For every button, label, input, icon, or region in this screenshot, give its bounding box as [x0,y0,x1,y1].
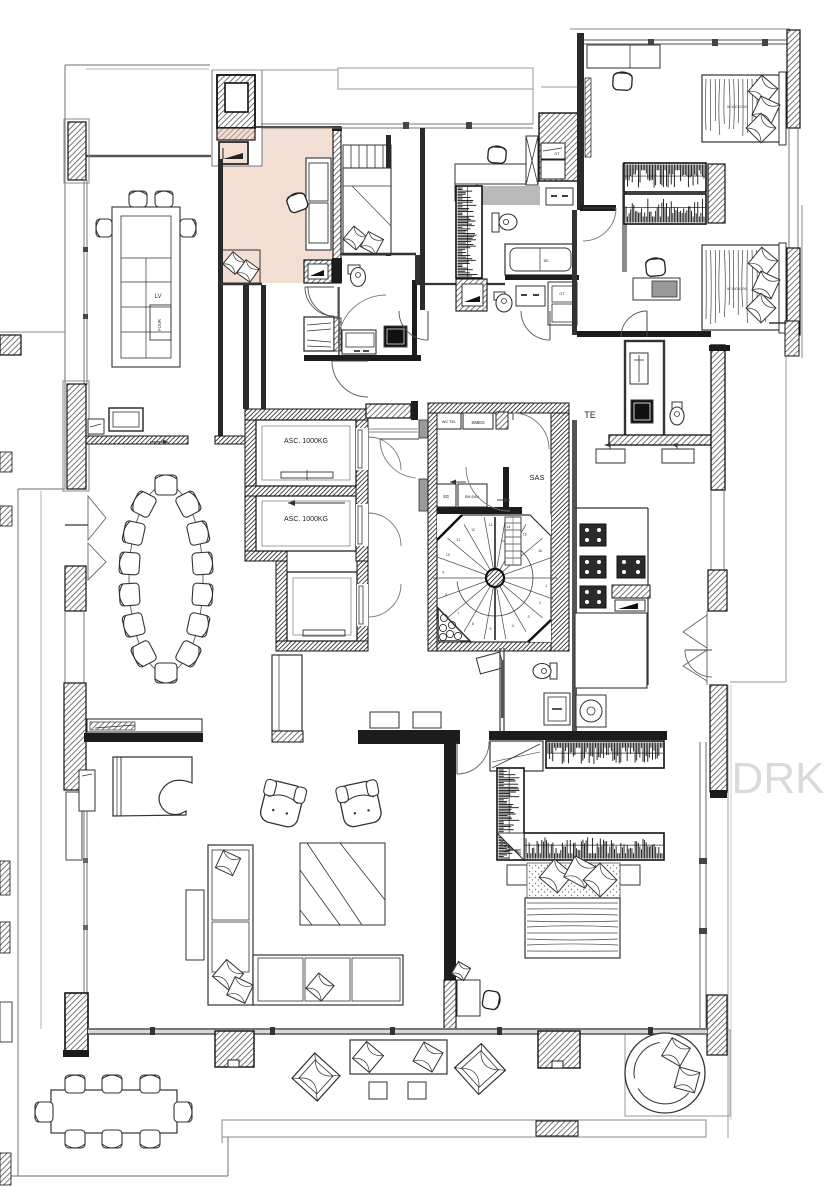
svg-text:BD: BD [544,259,549,263]
svg-text:TE: TE [584,410,596,420]
svg-text:2: 2 [539,601,541,605]
svg-text:ASC. 1000KG: ASC. 1000KG [284,516,328,523]
svg-text:LV: LV [155,294,162,300]
svg-text:DRK: DRK [732,754,825,803]
svg-text:12: 12 [471,528,475,532]
svg-text:10: 10 [446,553,450,557]
svg-text:4: 4 [512,624,514,628]
svg-text:GT: GT [559,291,565,296]
svg-text:GT: GT [554,151,560,156]
svg-text:SG: SG [443,494,449,499]
svg-text:7: 7 [457,612,459,616]
svg-text:1: 1 [545,584,547,588]
svg-text:11: 11 [456,538,460,542]
svg-text:5: 5 [489,627,491,631]
svg-text:6: 6 [472,622,474,626]
svg-text:FOUR: FOUR [157,319,162,331]
svg-text:lit 160X200: lit 160X200 [727,104,748,109]
svg-text:lit 160X200: lit 160X200 [727,286,748,291]
svg-text:8: 8 [445,593,447,597]
svg-text:SAS: SAS [529,473,544,482]
svg-text:SMEG: SMEG [471,420,485,425]
svg-text:ASC. 1000KG: ASC. 1000KG [284,438,328,445]
svg-text:13: 13 [489,523,493,527]
svg-text:15: 15 [523,532,527,536]
svg-text:16: 16 [538,549,542,553]
svg-text:9: 9 [442,570,444,574]
svg-text:WC TEL: WC TEL [442,420,456,424]
svg-text:14: 14 [507,525,511,529]
svg-text:3: 3 [527,615,529,619]
